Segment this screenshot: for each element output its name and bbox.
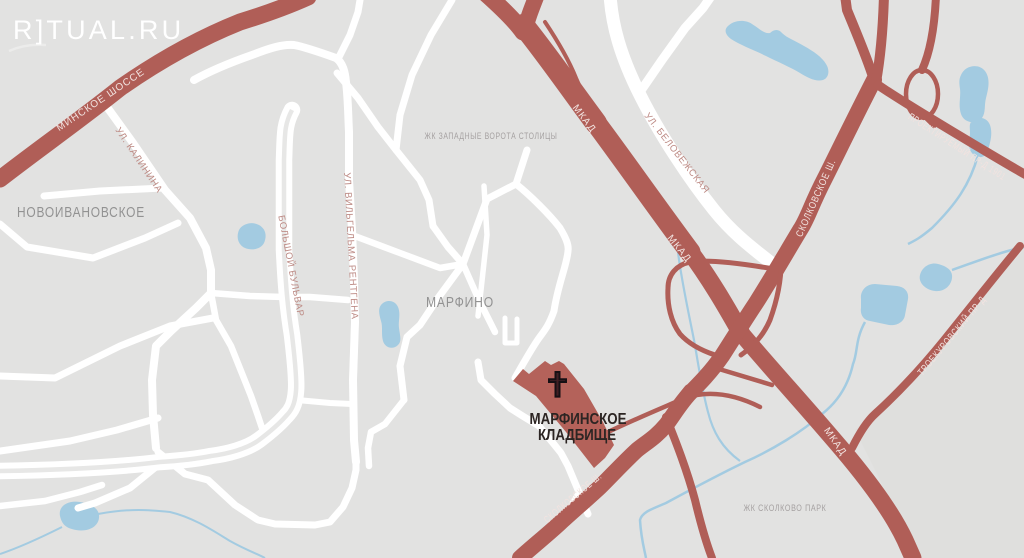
svg-text:НОВОИВАНОВСКОЕ: НОВОИВАНОВСКОЕ	[17, 204, 145, 221]
svg-text:МАРФИНО: МАРФИНО	[426, 294, 494, 311]
svg-text:МАРФИНСКОЕ: МАРФИНСКОЕ	[530, 411, 627, 428]
svg-text:КЛАДБИЩЕ: КЛАДБИЩЕ	[538, 427, 616, 444]
svg-text:R]TUAL.RU: R]TUAL.RU	[13, 15, 184, 45]
svg-text:ЖК СКОЛКОВО ПАРК: ЖК СКОЛКОВО ПАРК	[744, 503, 827, 513]
svg-text:ЖК ЗАПАДНЫЕ ВОРОТА СТОЛИЦЫ: ЖК ЗАПАДНЫЕ ВОРОТА СТОЛИЦЫ	[425, 131, 558, 141]
